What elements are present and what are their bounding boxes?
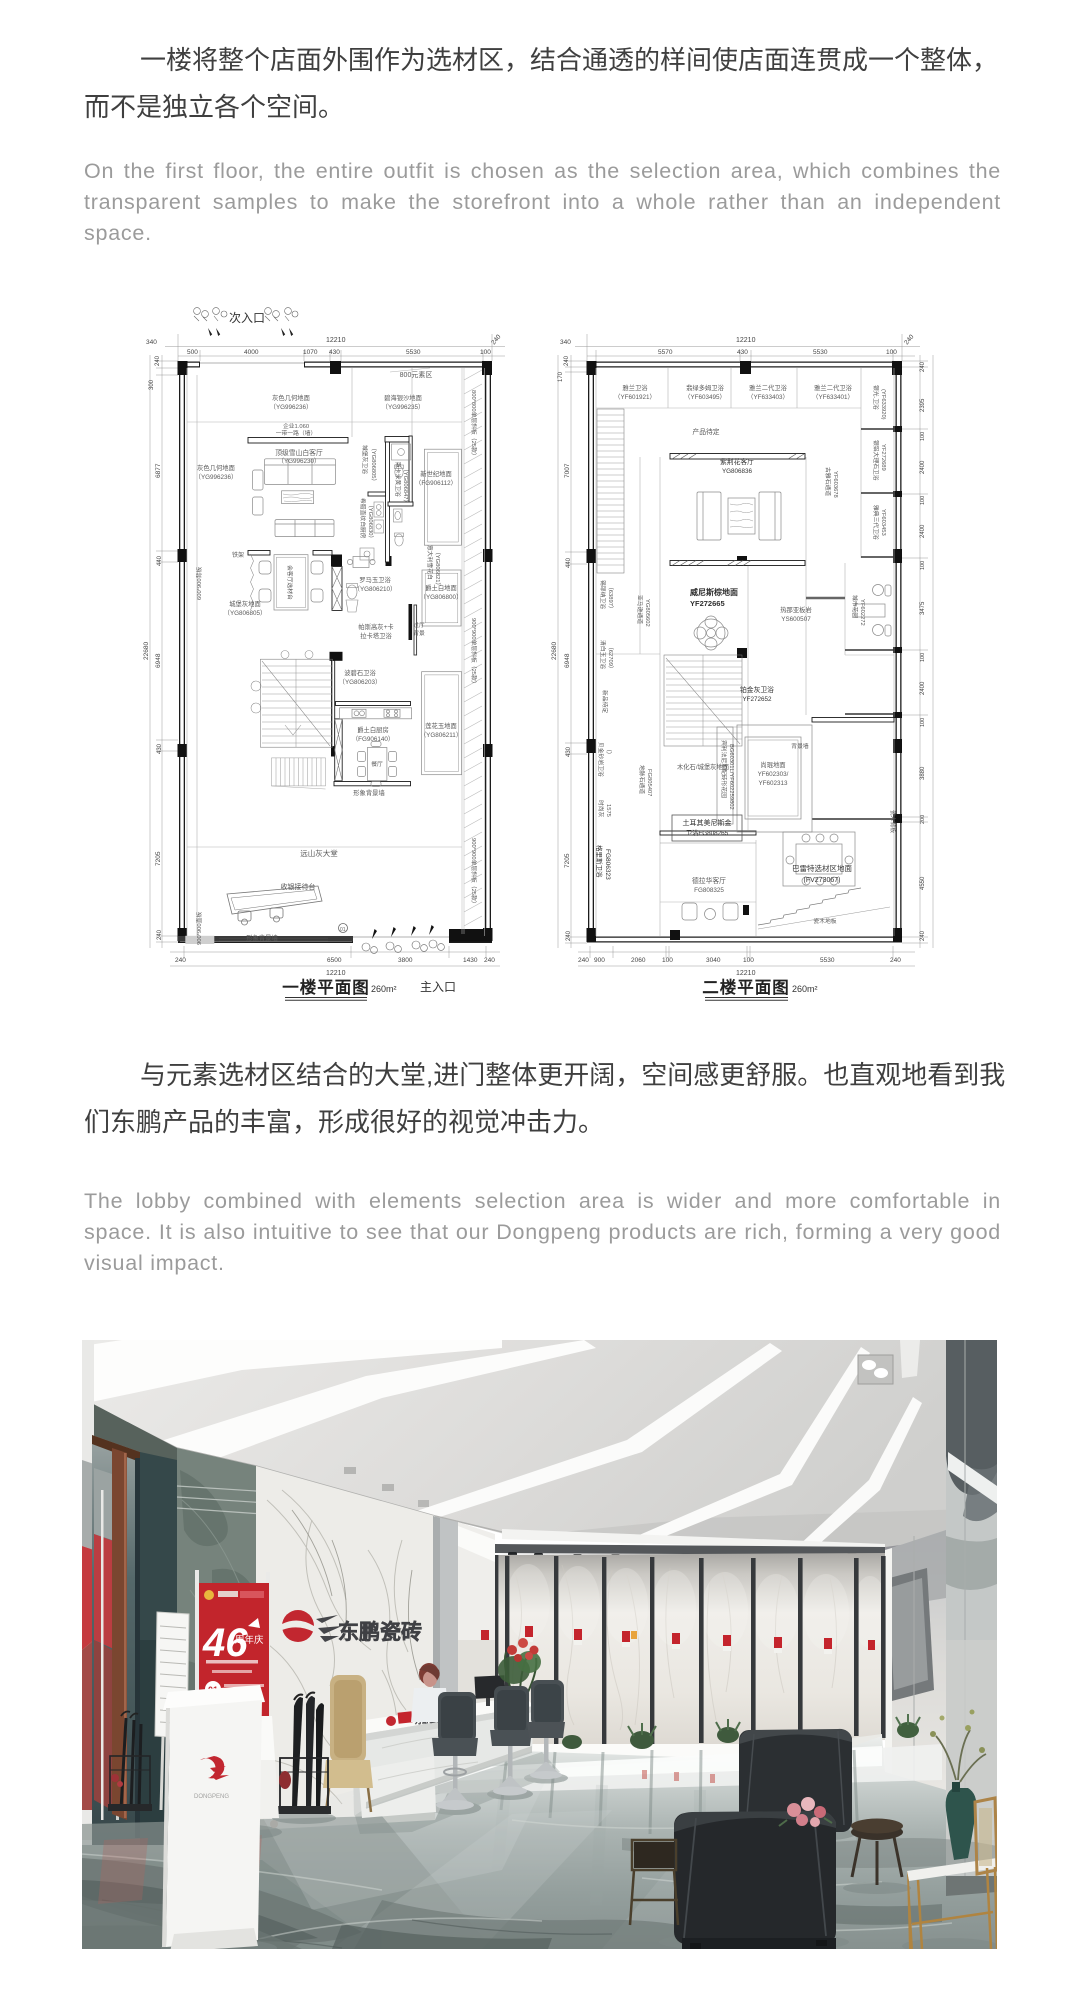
svg-text:440: 440 (157, 555, 163, 566)
svg-text:清白玉卫浴: 清白玉卫浴 (599, 640, 607, 669)
svg-text:爵土白地面: 爵土白地面 (425, 583, 456, 592)
svg-text:4550: 4550 (920, 876, 926, 890)
svg-text:YF602303/: YF602303/ (758, 771, 789, 778)
svg-text:900*900直板: 900*900直板 (195, 912, 203, 945)
svg-text:远山灰大堂: 远山灰大堂 (300, 848, 338, 858)
svg-text:雅兰二代卫浴: 雅兰二代卫浴 (749, 383, 787, 392)
svg-text:巴雷特选材区地面: 巴雷特选材区地面 (792, 863, 852, 873)
svg-text:100: 100 (920, 561, 926, 570)
svg-text:（63897）: （63897） (607, 584, 614, 612)
svg-text:(YF633920): (YF633920) (880, 389, 886, 420)
svg-text:900: 900 (594, 957, 605, 964)
svg-text:新世纪地面: 新世纪地面 (420, 469, 451, 478)
svg-text:YG805602: YG805602 (644, 599, 650, 627)
svg-text:新品待定: 新品待定 (601, 690, 609, 713)
svg-text:一带一路（墙）: 一带一路（墙） (276, 429, 317, 437)
svg-text:翡绿多姆卫浴: 翡绿多姆卫浴 (686, 383, 724, 392)
svg-text:FG808325: FG808325 (694, 887, 724, 894)
svg-text:12210: 12210 (736, 970, 756, 977)
svg-text:餐厅: 餐厅 (371, 760, 383, 768)
svg-text:背景墙: 背景墙 (791, 742, 809, 750)
svg-text:（FG906112）: （FG906112） (415, 480, 457, 487)
svg-text:（YG996230）: （YG996230） (278, 458, 321, 465)
svg-text:产品待定: 产品待定 (692, 427, 719, 436)
svg-text:（YG806805）: （YG806805） (370, 445, 377, 484)
svg-text:900*900单层斜板（25款）: 900*900单层斜板（25款） (470, 838, 478, 907)
svg-text:FG805407: FG805407 (646, 769, 652, 796)
svg-text:（YG806847）: （YG806847） (402, 466, 409, 505)
svg-text:2060: 2060 (631, 957, 646, 964)
svg-text:900*900单层斜板（25款）: 900*900单层斜板（25款） (470, 618, 478, 687)
svg-text:600*900背板: 600*900背板 (195, 567, 203, 600)
svg-text:800元素区: 800元素区 (400, 370, 433, 379)
svg-text:240: 240 (484, 957, 495, 964)
svg-text:BG60301L/YF602259802: BG60301L/YF602259802 (728, 744, 734, 810)
svg-text:FG806323: FG806323 (604, 849, 611, 880)
svg-text:二楼平面图: 二楼平面图 (702, 977, 790, 997)
svg-text:YF602313: YF602313 (758, 780, 788, 787)
svg-text:（YG806210）: （YG806210） (354, 586, 397, 593)
svg-text:银铝大理石卫浴: 银铝大理石卫浴 (872, 440, 880, 481)
svg-text:威尼斯棕地面: 威尼斯棕地面 (690, 587, 738, 597)
svg-text:YS600507: YS600507 (781, 616, 811, 623)
svg-text:1430: 1430 (463, 957, 478, 964)
svg-text:5570: 5570 (658, 349, 673, 356)
svg-text:（YF601921）: （YF601921） (614, 394, 656, 401)
svg-text:100: 100 (480, 349, 491, 356)
svg-text:主入口: 主入口 (420, 980, 456, 994)
svg-text:（YG806800）: （YG806800） (420, 594, 463, 601)
svg-text:260m²: 260m² (371, 984, 397, 994)
svg-text:170: 170 (558, 371, 564, 382)
svg-text:22680: 22680 (551, 642, 558, 660)
svg-text:340: 340 (560, 339, 571, 346)
svg-text:（YF633401）: （YF633401） (812, 394, 854, 401)
svg-text:银光.卫浴: 银光.卫浴 (872, 385, 880, 410)
svg-text:灰色几何地面: 灰色几何地面 (197, 463, 235, 472)
svg-text:罗马玉卫浴: 罗马玉卫浴 (359, 575, 391, 584)
svg-text:贝金砂岩卫浴: 贝金砂岩卫浴 (597, 742, 605, 777)
svg-text:12210: 12210 (736, 337, 756, 344)
svg-text:背景: 背景 (413, 629, 425, 637)
svg-text:3880: 3880 (920, 766, 926, 780)
svg-text:5530: 5530 (820, 957, 835, 964)
svg-text:收银接待台: 收银接待台 (281, 882, 316, 891)
svg-text:紫荆花客厅: 紫荆花客厅 (720, 457, 754, 466)
svg-text:（YG806830）: （YG806830） (367, 502, 374, 541)
svg-text:100: 100 (886, 349, 897, 356)
svg-text:（YG806203）: （YG806203） (339, 679, 382, 686)
svg-text:1070: 1070 (303, 349, 318, 356)
svg-text:12210: 12210 (326, 337, 346, 344)
svg-text:爵土白厨房: 爵土白厨房 (357, 725, 388, 734)
svg-text:东鹏瓷砖: 东鹏瓷砖 (338, 1620, 422, 1644)
svg-text:1575: 1575 (605, 804, 611, 817)
svg-text:卫浴FG808265: 卫浴FG808265 (686, 828, 729, 837)
svg-text:12210: 12210 (326, 970, 346, 977)
svg-text:430: 430 (566, 746, 572, 757)
svg-text:（FG906140）: （FG906140） (352, 736, 394, 743)
svg-text:240: 240 (157, 929, 163, 940)
svg-text:宾利法尼亚配砖形花园: 宾利法尼亚配砖形花园 (720, 740, 728, 798)
svg-text:铂金灰卫浴: 铂金灰卫浴 (740, 685, 774, 694)
svg-text:雅典三代卫浴: 雅典三代卫浴 (872, 505, 880, 540)
svg-text:瓷木背板: 瓷木背板 (889, 810, 897, 833)
svg-text:（YG996236）: （YG996236） (195, 474, 238, 481)
svg-text:意大利雪花白: 意大利雪花白 (426, 545, 434, 580)
svg-text:100: 100 (920, 718, 926, 727)
svg-text:锡耶纳卫浴: 锡耶纳卫浴 (599, 580, 607, 609)
svg-text:240: 240 (175, 957, 186, 964)
svg-text:（YF633403）: （YF633403） (747, 394, 789, 401)
svg-text:（YG806821）: （YG806821） (434, 549, 441, 588)
svg-text:100: 100 (662, 957, 673, 964)
svg-text:帕斯高灰+卡: 帕斯高灰+卡 (358, 622, 393, 631)
svg-text:莲花玉地面: 莲花玉地面 (425, 721, 456, 730)
svg-text:城堡灰地面: 城堡灰地面 (229, 599, 260, 608)
svg-text:240: 240 (920, 361, 926, 372)
svg-text:（YF603495）: （YF603495） (684, 394, 726, 401)
svg-text:500: 500 (187, 349, 198, 356)
svg-text:800*800单层斜板（25款）: 800*800单层斜板（25款） (470, 390, 478, 459)
svg-text:YF272689: YF272689 (880, 444, 886, 471)
svg-text:会客厅选材台: 会客厅选材台 (286, 565, 294, 600)
svg-text:430: 430 (157, 743, 163, 754)
svg-text:YF603453: YF603453 (880, 509, 886, 536)
svg-text:波碧石卫浴: 波碧石卫浴 (344, 668, 376, 677)
svg-text:格里斯卫浴: 格里斯卫浴 (595, 845, 604, 878)
svg-text:（YG806805）: （YG806805） (224, 610, 267, 617)
svg-text:5530: 5530 (406, 349, 421, 356)
svg-text:240: 240 (564, 355, 570, 366)
svg-text:7007: 7007 (564, 463, 571, 478)
svg-text:2400: 2400 (920, 524, 926, 538)
svg-text:2395: 2395 (920, 398, 926, 412)
svg-text:6948: 6948 (155, 653, 162, 668)
svg-text:YG806836: YG806836 (722, 468, 753, 475)
svg-text:240: 240 (903, 333, 916, 346)
svg-text:雅兰二代卫浴: 雅兰二代卫浴 (814, 383, 852, 392)
svg-text:（62709）: （62709） (607, 644, 614, 672)
svg-text:瓷木地板: 瓷木地板 (813, 917, 836, 925)
svg-text:土耳其美尼斯金: 土耳其美尼斯金 (683, 818, 732, 827)
svg-text:3800: 3800 (398, 957, 413, 964)
svg-text:3475: 3475 (920, 601, 926, 615)
svg-text:260m²: 260m² (792, 984, 818, 994)
svg-text:240: 240 (155, 355, 161, 366)
svg-text:灰色几何地面: 灰色几何地面 (272, 393, 310, 402)
svg-text:（YG996235）: （YG996235） (382, 404, 425, 411)
svg-text:240: 240 (920, 930, 926, 941)
svg-text:（）: （） (605, 746, 612, 758)
svg-text:拉卡塔卫浴: 拉卡塔卫浴 (360, 631, 392, 640)
svg-text:YF272652: YF272652 (742, 696, 772, 703)
svg-text:5530: 5530 (813, 349, 828, 356)
svg-text:YF272665: YF272665 (690, 599, 725, 608)
svg-text:200: 200 (920, 815, 926, 824)
svg-text:亚马逊通道: 亚马逊通道 (636, 595, 644, 624)
svg-text:340: 340 (146, 339, 157, 346)
svg-text:YF603678: YF603678 (832, 471, 838, 498)
svg-text:（YG996236）: （YG996236） (270, 404, 313, 411)
svg-text:430: 430 (737, 349, 748, 356)
svg-text:城堡灰卫浴: 城堡灰卫浴 (361, 445, 369, 474)
svg-text:企业1.060: 企业1.060 (283, 422, 309, 430)
svg-text:斯卡米黄卫浴: 斯卡米黄卫浴 (394, 462, 402, 497)
svg-text:7205: 7205 (155, 851, 162, 866)
svg-text:一楼平面图: 一楼平面图 (282, 977, 370, 997)
svg-text:时尚灰: 时尚灰 (597, 800, 605, 818)
svg-text:6877: 6877 (155, 463, 162, 478)
svg-text:3040: 3040 (706, 957, 721, 964)
svg-text:(FV273067): (FV273067) (804, 877, 841, 884)
svg-text:铁架: 铁架 (232, 551, 244, 559)
svg-text:430: 430 (329, 349, 340, 356)
svg-text:形象背景墙: 形象背景墙 (353, 788, 385, 797)
svg-text:YF602272: YF602272 (859, 599, 865, 626)
svg-text:碧海银沙地面: 碧海银沙地面 (384, 393, 422, 402)
svg-text:7205: 7205 (564, 853, 571, 868)
svg-text:240: 240 (890, 957, 901, 964)
svg-text:（YG806211）: （YG806211） (420, 732, 462, 739)
svg-text:形象背景墙: 形象背景墙 (246, 933, 278, 942)
svg-text:240: 240 (566, 930, 572, 941)
svg-text:周年庆: 周年庆 (235, 1634, 264, 1646)
svg-text:尚琨地面: 尚琨地面 (760, 760, 785, 769)
svg-text:6500: 6500 (327, 957, 342, 964)
svg-text:城市花园: 城市花园 (851, 595, 859, 618)
svg-text:100: 100 (743, 957, 754, 964)
svg-text:240: 240 (578, 957, 589, 964)
svg-text:雅兰卫浴: 雅兰卫浴 (622, 383, 648, 392)
svg-text:100: 100 (920, 653, 926, 662)
svg-text:德拉华客厅: 德拉华客厅 (692, 876, 726, 885)
svg-text:2400: 2400 (920, 681, 926, 695)
svg-text:热那亚板岩: 热那亚板岩 (780, 605, 811, 614)
svg-text:次入口: 次入口 (229, 311, 265, 325)
svg-text:DONGPENG: DONGPENG (194, 1794, 229, 1800)
svg-text:2400: 2400 (920, 460, 926, 474)
svg-text:过厅: 过厅 (413, 621, 425, 629)
svg-text:地脉石通道: 地脉石通道 (638, 765, 646, 794)
svg-text:4000: 4000 (244, 349, 259, 356)
svg-text:希腊直纹白厨房: 希腊直纹白厨房 (359, 498, 367, 539)
svg-text:440: 440 (566, 557, 572, 568)
svg-text:300: 300 (149, 379, 155, 390)
svg-text:6948: 6948 (564, 653, 571, 668)
svg-text:01: 01 (340, 927, 346, 933)
svg-text:顶级雪山白客厅: 顶级雪山白客厅 (275, 448, 323, 457)
svg-text:22680: 22680 (143, 642, 150, 660)
svg-text:100: 100 (920, 496, 926, 505)
svg-text:古雅石通道: 古雅石通道 (824, 467, 832, 496)
svg-text:100: 100 (920, 432, 926, 441)
